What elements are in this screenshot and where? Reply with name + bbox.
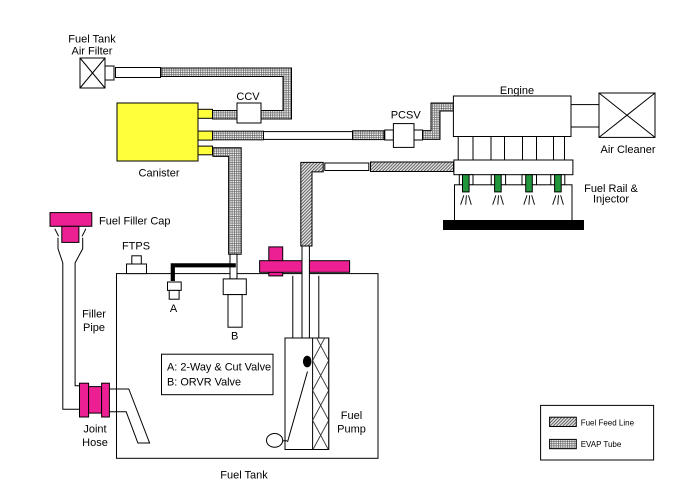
- svg-text:Engine: Engine: [500, 85, 534, 97]
- svg-text:PCSV: PCSV: [391, 110, 422, 122]
- svg-text:Fuel Tank: Fuel Tank: [220, 470, 268, 482]
- svg-text:Air Cleaner: Air Cleaner: [600, 144, 655, 156]
- svg-text:Canister: Canister: [139, 168, 180, 180]
- svg-text:Fuel Tank: Fuel Tank: [68, 34, 116, 46]
- svg-text:Hose: Hose: [82, 437, 108, 449]
- svg-text:Fuel Feed Line: Fuel Feed Line: [581, 418, 635, 427]
- svg-text:Fuel: Fuel: [341, 410, 362, 422]
- svg-text:Joint: Joint: [83, 424, 106, 436]
- svg-text:B: ORVR Valve: B: ORVR Valve: [167, 376, 241, 388]
- svg-text:A: A: [170, 303, 178, 315]
- svg-text:FTPS: FTPS: [122, 240, 150, 252]
- svg-text:B: B: [231, 331, 238, 343]
- svg-text:A: 2-Way & Cut Valve: A: 2-Way & Cut Valve: [167, 362, 271, 374]
- svg-text:Fuel Filler Cap: Fuel Filler Cap: [99, 216, 171, 228]
- svg-text:Filler: Filler: [82, 308, 106, 320]
- svg-text:CCV: CCV: [236, 91, 260, 103]
- svg-text:Pump: Pump: [337, 423, 366, 435]
- svg-text:Injector: Injector: [593, 193, 629, 205]
- svg-text:Air Filter: Air Filter: [72, 45, 113, 57]
- svg-text:EVAP Tube: EVAP Tube: [581, 440, 622, 449]
- svg-text:Pipe: Pipe: [83, 322, 105, 334]
